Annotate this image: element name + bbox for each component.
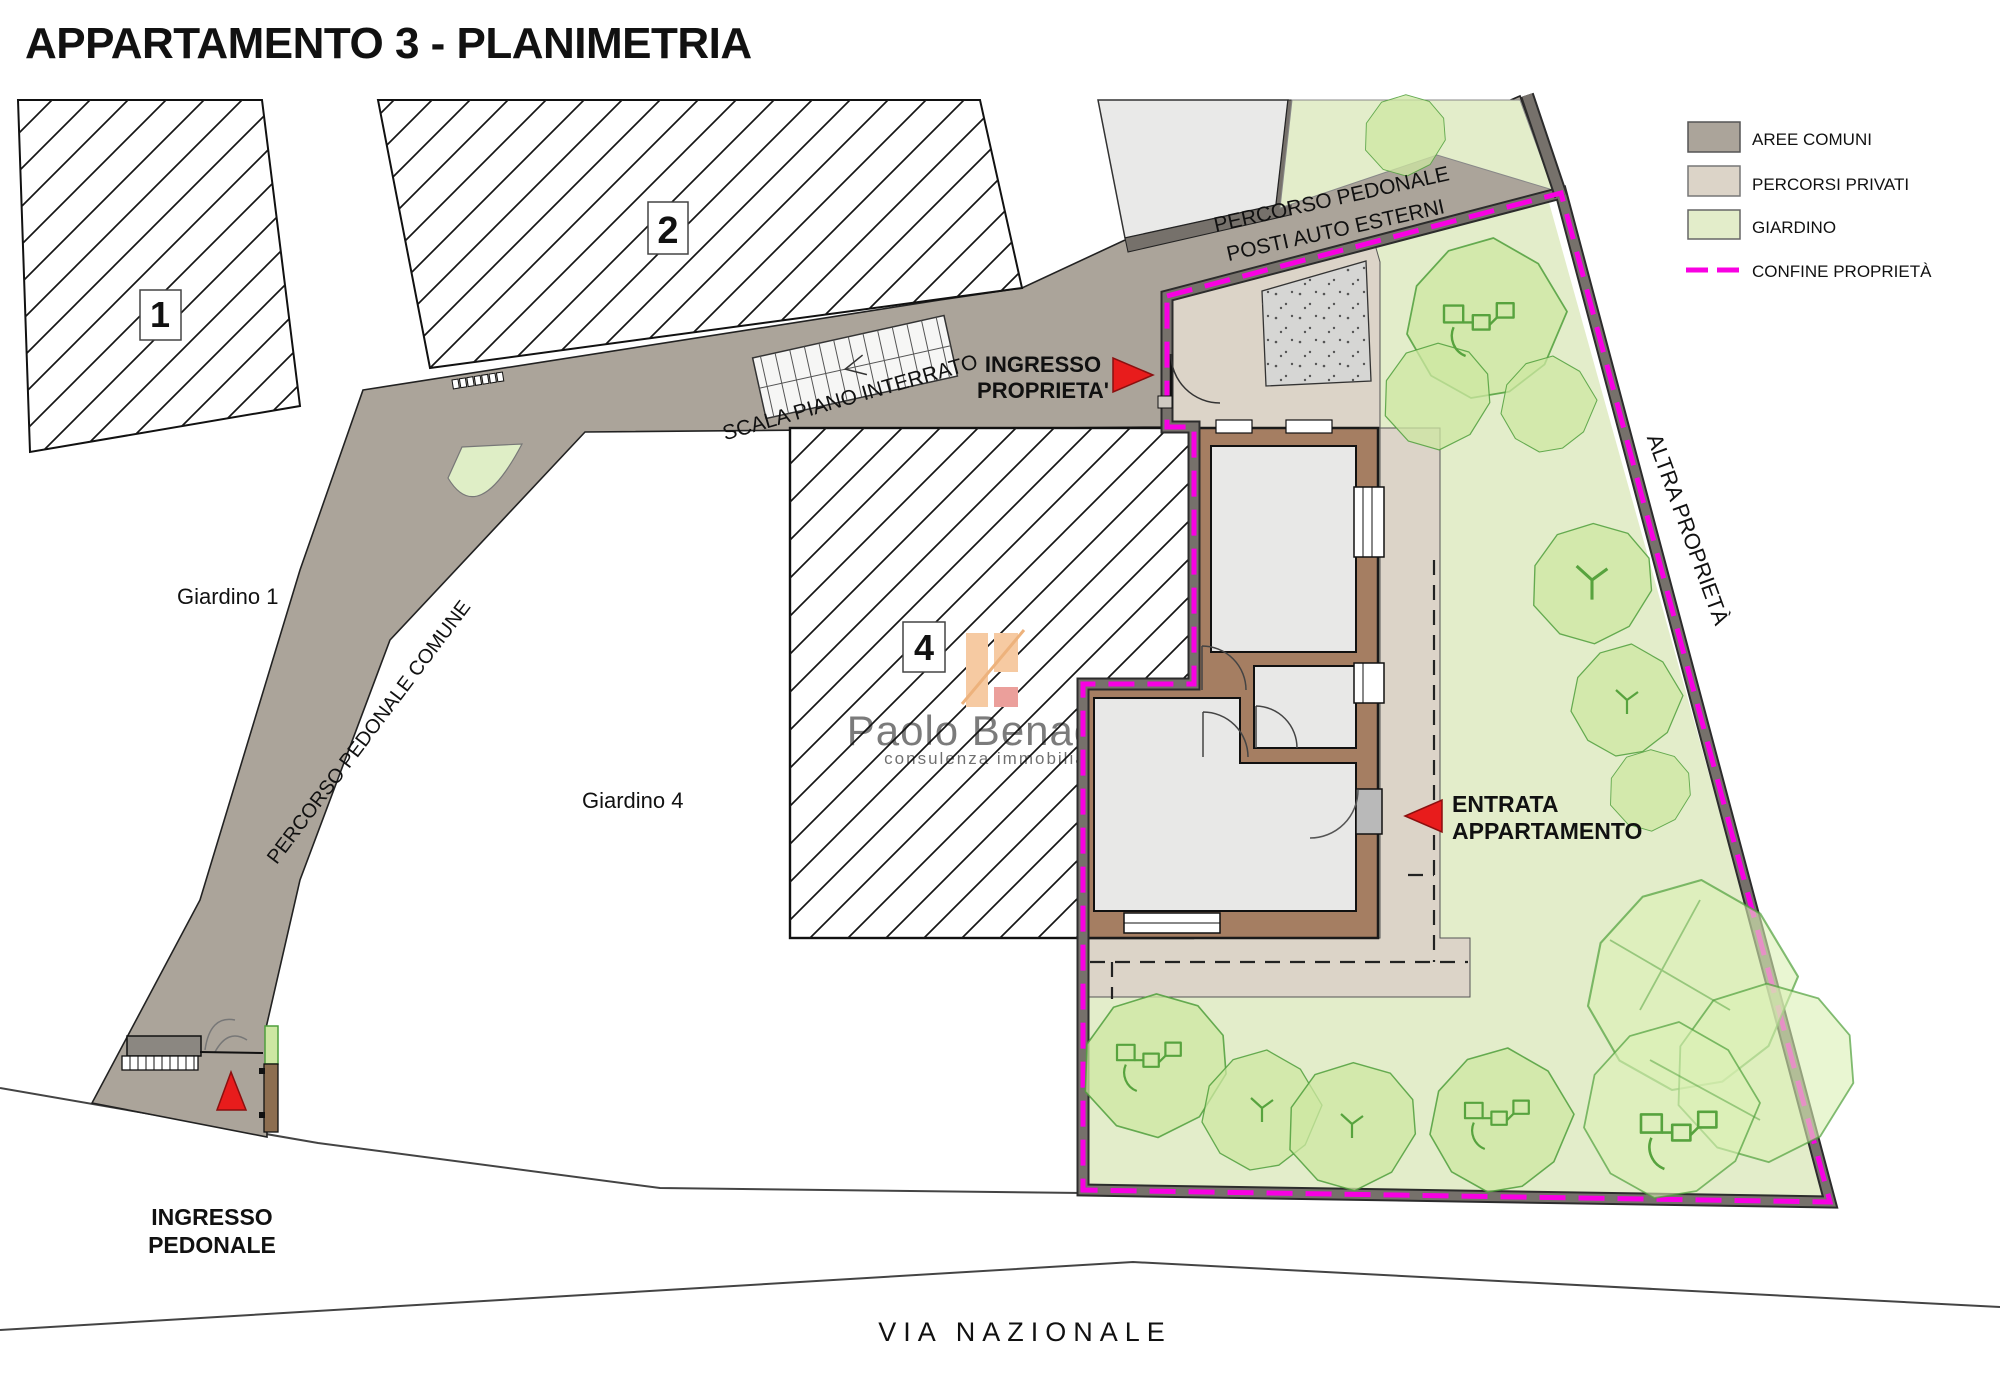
building-1: 1	[18, 100, 300, 452]
legend-swatch-giardino	[1688, 210, 1740, 239]
hedge	[265, 1026, 278, 1064]
label-ingresso-pedonale-line2: PEDONALE	[148, 1232, 276, 1258]
legend-swatch-percorsi-privati	[1688, 166, 1740, 196]
legend-label-aree-comuni: AREE COMUNI	[1752, 130, 1872, 149]
room-mid	[1254, 666, 1356, 748]
legend-label-confine: CONFINE PROPRIETÀ	[1752, 262, 1932, 281]
legend: AREE COMUNI PERCORSI PRIVATI GIARDINO CO…	[1686, 122, 1932, 281]
label-via-nazionale: VIA NAZIONALE	[878, 1317, 1172, 1347]
legend-label-giardino: GIARDINO	[1752, 218, 1836, 237]
building-2-label: 2	[657, 210, 678, 252]
building-1-label: 1	[150, 294, 170, 335]
room-living	[1211, 446, 1356, 652]
label-ingresso-pedonale-line1: INGRESSO	[151, 1204, 272, 1230]
label-entrata-line1: ENTRATA	[1452, 791, 1558, 817]
watermark-tagline: consulenza immobiliare	[884, 749, 1106, 768]
label-entrata-line2: APPARTAMENTO	[1452, 818, 1642, 844]
label-ingresso-proprieta-line2: PROPRIETA'	[977, 378, 1109, 403]
site-plan-drawing: 1 2 4 Paolo Benagl	[0, 0, 2000, 1394]
gate-post	[264, 1064, 278, 1132]
label-giardino-4: Giardino 4	[582, 788, 684, 813]
site-plan-page: 1 2 4 Paolo Benagl	[0, 0, 2000, 1394]
building-4-label: 4	[914, 627, 934, 668]
legend-label-percorsi-privati: PERCORSI PRIVATI	[1752, 175, 1909, 194]
label-ingresso-proprieta-line1: INGRESSO	[985, 352, 1101, 377]
page-title: APPARTAMENTO 3 - PLANIMETRIA	[25, 19, 752, 68]
label-giardino-1: Giardino 1	[177, 584, 279, 609]
legend-swatch-aree-comuni	[1688, 122, 1740, 152]
